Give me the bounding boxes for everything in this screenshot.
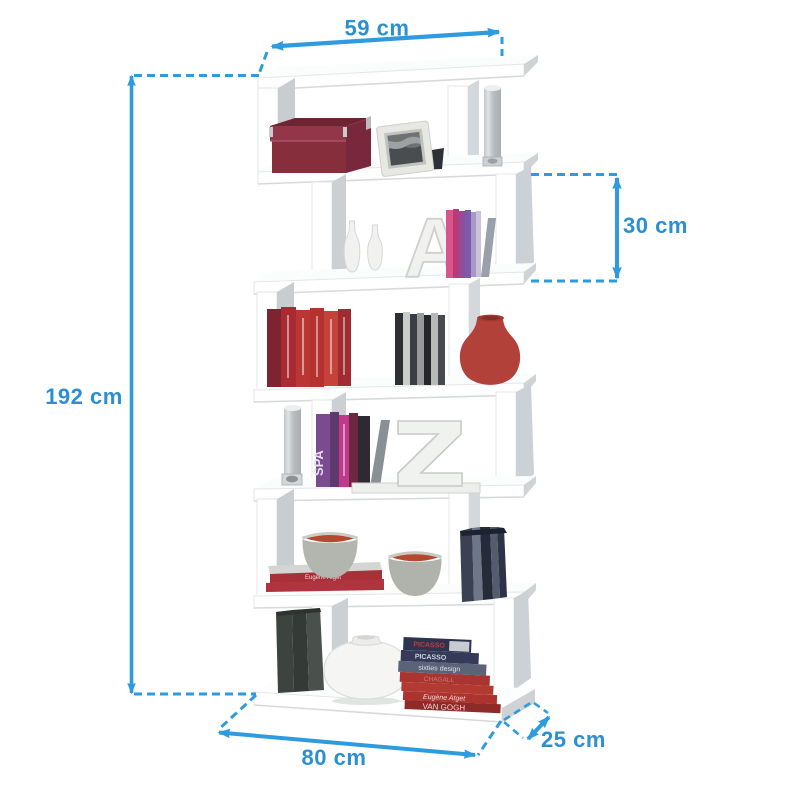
svg-text:192 cm: 192 cm	[45, 384, 123, 409]
svg-text:PICASSO: PICASSO	[415, 653, 447, 661]
svg-text:CHAGALL: CHAGALL	[424, 676, 455, 684]
svg-text:59 cm: 59 cm	[345, 16, 410, 41]
svg-text:VAN GOGH: VAN GOGH	[422, 702, 465, 713]
svg-text:80 cm: 80 cm	[302, 745, 367, 770]
svg-text:SPA: SPA	[311, 450, 326, 476]
svg-text:30 cm: 30 cm	[623, 213, 688, 238]
svg-text:PICASSO: PICASSO	[413, 641, 445, 649]
svg-text:25 cm: 25 cm	[541, 727, 606, 752]
